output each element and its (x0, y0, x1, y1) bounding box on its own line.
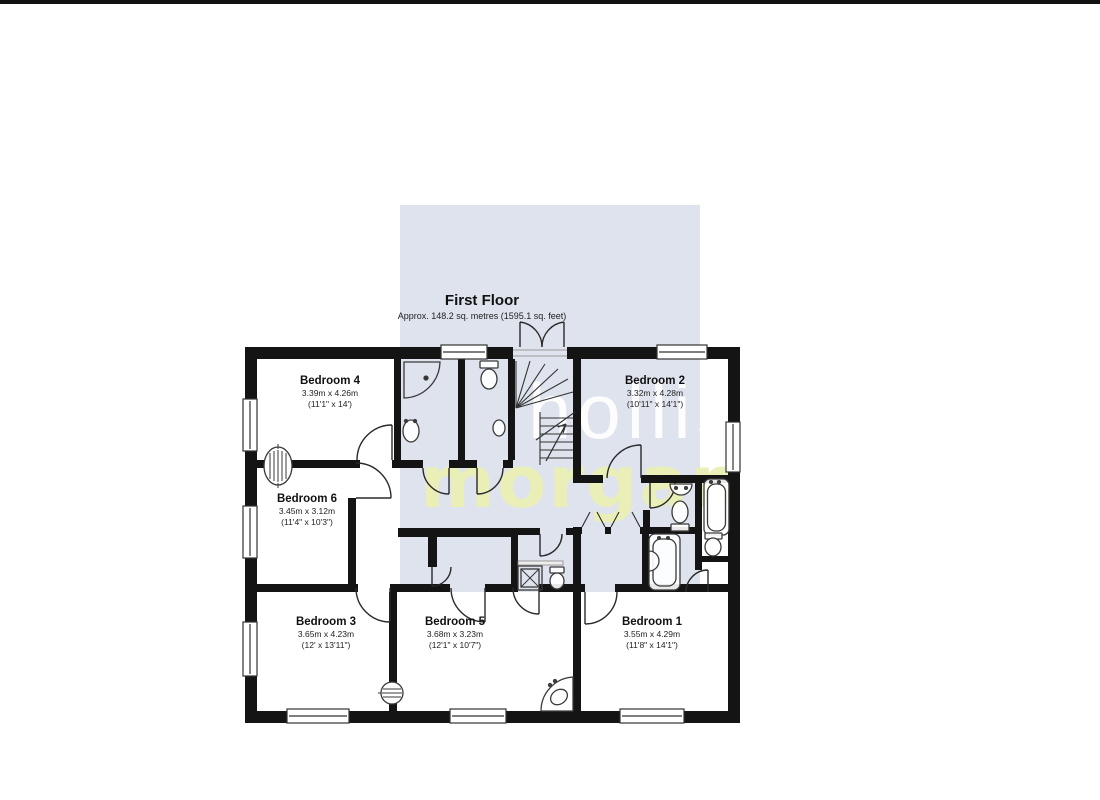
room-name: Bedroom 2 (583, 374, 727, 388)
room-name: Bedroom 5 (383, 615, 527, 629)
room-name: Bedroom 1 (580, 615, 724, 629)
room-label-bedroom3: Bedroom 3 3.65m x 4.23m (12' x 13'11") (254, 615, 398, 651)
room-name: Bedroom 4 (258, 374, 402, 388)
room-label-bedroom4: Bedroom 4 3.39m x 4.26m (11'1" x 14') (258, 374, 402, 410)
room-name: Bedroom 6 (235, 492, 379, 506)
door-arc (432, 567, 451, 586)
window (657, 345, 707, 359)
corner-bath (541, 677, 573, 711)
room-size-imperial: (11'1" x 14') (258, 399, 402, 410)
radiator (264, 444, 292, 488)
window (620, 709, 684, 723)
room-size-metric: 3.55m x 4.29m (580, 629, 724, 640)
staircase (516, 361, 575, 465)
window (287, 709, 349, 723)
floorplan-page: hollis morgan First Floor Approx. 148.2 … (0, 0, 1100, 800)
window (726, 422, 740, 472)
toilet (671, 501, 689, 531)
radiator (378, 682, 403, 704)
window (450, 709, 506, 723)
room-size-imperial: (10'11" x 14'1") (583, 399, 727, 410)
toilet (480, 361, 498, 389)
room-size-imperial: (12'1" x 10'7") (383, 640, 527, 651)
room-size-metric: 3.39m x 4.26m (258, 388, 402, 399)
room-label-bedroom5: Bedroom 5 3.68m x 3.23m (12'1" x 10'7") (383, 615, 527, 651)
room-size-metric: 3.32m x 4.28m (583, 388, 727, 399)
window (243, 399, 257, 451)
sink (493, 420, 505, 436)
room-size-metric: 3.68m x 3.23m (383, 629, 527, 640)
room-size-metric: 3.45m x 3.12m (235, 506, 379, 517)
room-size-imperial: (12' x 13'11") (254, 640, 398, 651)
sink (403, 420, 419, 443)
corner-shower (404, 362, 440, 398)
room-size-metric: 3.65m x 4.23m (254, 629, 398, 640)
room-name: Bedroom 3 (254, 615, 398, 629)
shower (518, 566, 542, 590)
door-arc (423, 468, 449, 494)
room-label-bedroom2: Bedroom 2 3.32m x 4.28m (10'11" x 14'1") (583, 374, 727, 410)
bathtub (704, 479, 729, 535)
double-door (513, 322, 567, 356)
cupboard-doors (582, 512, 640, 527)
glass-screen (518, 561, 563, 565)
room-label-bedroom6: Bedroom 6 3.45m x 3.12m (11'4" x 10'3") (235, 492, 379, 528)
toilet (705, 533, 722, 556)
door-arc (540, 534, 562, 556)
room-size-imperial: (11'8" x 14'1") (580, 640, 724, 651)
room-size-imperial: (11'4" x 10'3") (235, 517, 379, 528)
door-arc (477, 468, 503, 494)
toilet (550, 567, 564, 589)
window (441, 345, 487, 359)
door-arc (357, 425, 392, 460)
room-label-bedroom1: Bedroom 1 3.55m x 4.29m (11'8" x 14'1") (580, 615, 724, 651)
floor-plan-drawing (0, 0, 1100, 800)
door-arc (607, 445, 641, 478)
